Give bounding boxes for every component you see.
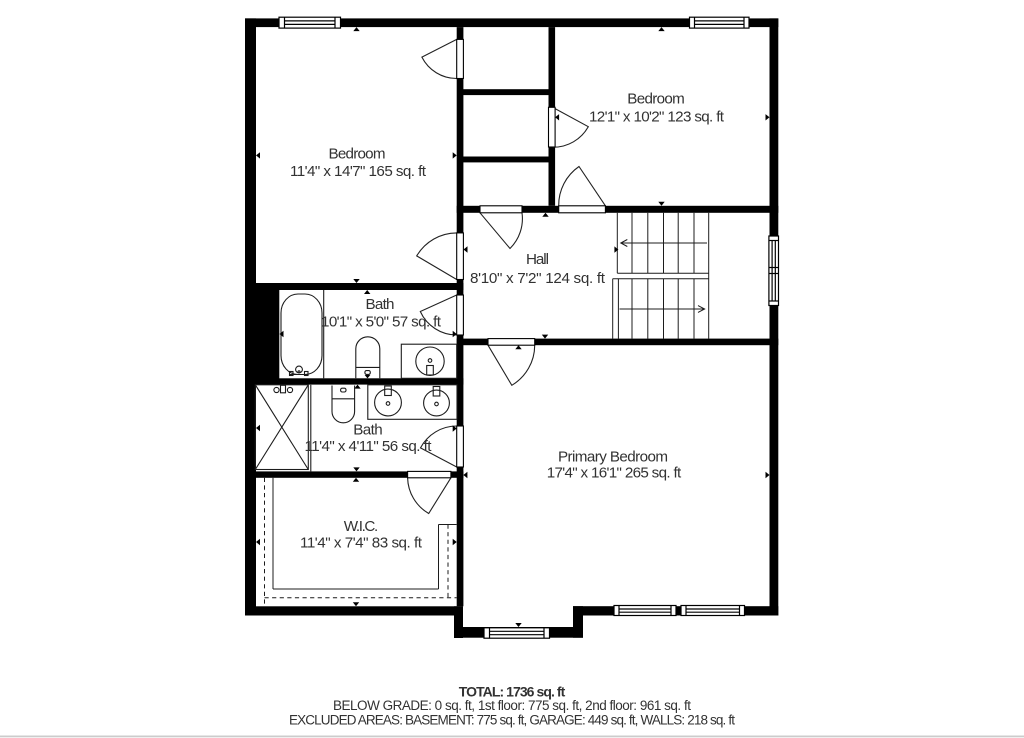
svg-text:Bedroom: Bedroom bbox=[627, 91, 685, 108]
svg-text:Hall: Hall bbox=[526, 251, 549, 268]
svg-text:12'1" x 10'2" 123 sq. ft: 12'1" x 10'2" 123 sq. ft bbox=[589, 108, 725, 125]
svg-text:Bath: Bath bbox=[353, 422, 383, 439]
svg-text:EXCLUDED AREAS: BASEMENT: 775: EXCLUDED AREAS: BASEMENT: 775 sq. ft, GA… bbox=[289, 713, 735, 728]
svg-text:10'1" x 5'0" 57 sq. ft: 10'1" x 5'0" 57 sq. ft bbox=[321, 314, 442, 331]
svg-text:Bath: Bath bbox=[366, 296, 395, 313]
svg-text:Bedroom: Bedroom bbox=[329, 145, 386, 162]
svg-text:8'10" x 7'2" 124 sq. ft: 8'10" x 7'2" 124 sq. ft bbox=[470, 270, 606, 287]
svg-text:17'4" x 16'1" 265 sq. ft: 17'4" x 16'1" 265 sq. ft bbox=[547, 465, 682, 482]
svg-text:11'4" x 14'7" 165 sq. ft: 11'4" x 14'7" 165 sq. ft bbox=[290, 163, 427, 180]
svg-text:11'4" x 4'11" 56 sq. ft: 11'4" x 4'11" 56 sq. ft bbox=[305, 438, 433, 455]
svg-text:11'4" x 7'4" 83 sq. ft: 11'4" x 7'4" 83 sq. ft bbox=[300, 535, 423, 552]
svg-text:BELOW GRADE: 0 sq. ft, 1st flo: BELOW GRADE: 0 sq. ft, 1st floor: 775 sq… bbox=[333, 698, 691, 713]
svg-text:TOTAL: 1736 sq. ft: TOTAL: 1736 sq. ft bbox=[459, 683, 566, 699]
svg-text:W.I.C.: W.I.C. bbox=[344, 518, 379, 535]
svg-text:Primary Bedroom: Primary Bedroom bbox=[558, 449, 668, 466]
